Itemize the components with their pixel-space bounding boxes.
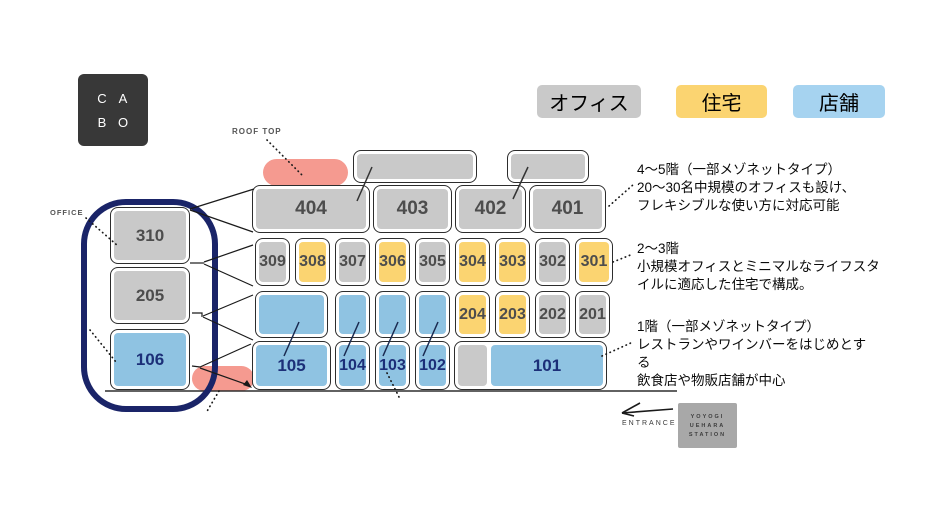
- cabo-logo: C A B O: [78, 74, 148, 146]
- unit-102: 102: [415, 341, 450, 390]
- text-line: 飲食店や物販店舗が中心: [637, 372, 937, 390]
- unit-fill: [511, 154, 585, 179]
- unit-309: 309: [255, 238, 290, 286]
- unit-fill: 401: [533, 189, 602, 229]
- legend-residence: 住宅: [676, 85, 767, 118]
- unit-201: 201: [575, 291, 610, 338]
- unit-205: 205: [110, 267, 190, 324]
- unit-204: 204: [455, 291, 490, 338]
- unit-2f-shop-3: [375, 291, 410, 338]
- logo-letter: A: [119, 91, 129, 106]
- unit-fill: 302: [539, 242, 566, 282]
- unit-fill: 305: [419, 242, 446, 282]
- unit-fill: [379, 295, 406, 334]
- unit-106: 106: [110, 329, 190, 390]
- legend-shop: 店舗: [793, 85, 885, 118]
- unit-fill: 104: [339, 345, 366, 386]
- unit-fill: 404: [256, 189, 366, 229]
- unit-5f-right: [507, 150, 589, 183]
- unit-fill: 105: [256, 345, 327, 386]
- text-line: レストランやワインバーをはじめとす: [637, 336, 937, 354]
- text-line: フレキシブルな使い方に対応可能: [637, 197, 937, 215]
- logo-letter: O: [118, 115, 129, 130]
- unit-fill: 403: [377, 189, 448, 229]
- unit-303: 303: [495, 238, 530, 286]
- unit-104: 104: [335, 341, 370, 390]
- unit-203: 203: [495, 291, 530, 338]
- unit-fill: 301: [579, 242, 609, 282]
- unit-307: 307: [335, 238, 370, 286]
- unit-fill: 402: [459, 189, 522, 229]
- pink-marker-entrance: [192, 366, 254, 391]
- unit-fill: 203: [499, 295, 526, 334]
- unit-306: 306: [375, 238, 410, 286]
- unit-fill: 202: [539, 295, 566, 334]
- entrance-label: ENTRANCE: [622, 420, 677, 427]
- text-line: る: [637, 354, 937, 372]
- unit-5f-left: [353, 150, 477, 183]
- text-line: 20〜30名中規模のオフィスも設け、: [637, 179, 937, 197]
- text-line: 2〜3階: [637, 240, 937, 258]
- text-line: 1階（一部メゾネットタイプ）: [637, 318, 937, 336]
- unit-402: 402: [455, 185, 526, 233]
- unit-fill: 205: [114, 271, 186, 320]
- unit-fill: 306: [379, 242, 406, 282]
- text-line: YOYOGI: [691, 414, 725, 420]
- unit-404: 404: [252, 185, 370, 233]
- station-box: YOYOGIUEHARASTATION: [678, 403, 737, 448]
- logo-letter: B: [98, 115, 108, 130]
- unit-fill: 103: [379, 345, 406, 386]
- note-floor-2-3: 2〜3階小規模オフィスとミニマルなライフスタイルに適応した住宅で構成。: [637, 240, 937, 294]
- entrance-arrow: [622, 403, 673, 416]
- unit-202: 202: [535, 291, 570, 338]
- leader-lines: [190, 189, 254, 385]
- unit-fill: 204: [459, 295, 486, 334]
- unit-fill: [419, 295, 446, 334]
- unit-2f-shop-2: [335, 291, 370, 338]
- unit-2f-shop-4: [415, 291, 450, 338]
- unit-fill: 303: [499, 242, 526, 282]
- unit-fill: 201: [579, 295, 606, 334]
- unit-403: 403: [373, 185, 452, 233]
- unit-fill: [259, 295, 324, 334]
- unit-101: 101: [491, 345, 603, 386]
- unit-fill: [357, 154, 473, 179]
- unit-fill: [339, 295, 366, 334]
- unit-fill: 304: [459, 242, 486, 282]
- text-line: イルに適応した住宅で構成。: [637, 276, 937, 294]
- unit-2f-shop-1: [255, 291, 328, 338]
- unit-305: 305: [415, 238, 450, 286]
- unit-308: 308: [295, 238, 330, 286]
- unit-fill: 307: [339, 242, 366, 282]
- unit-1f-gray: [458, 345, 487, 386]
- rooftop-label: ROOF TOP: [232, 127, 282, 136]
- unit-304: 304: [455, 238, 490, 286]
- logo-letter: C: [97, 91, 107, 106]
- text-line: STATION: [689, 432, 726, 438]
- unit-301: 301: [575, 238, 613, 286]
- unit-310: 310: [110, 207, 190, 264]
- note-floor-1: 1階（一部メゾネットタイプ）レストランやワインバーをはじめとする飲食店や物販店舗…: [637, 318, 937, 390]
- unit-302: 302: [535, 238, 570, 286]
- text-line: 4〜5階（一部メゾネットタイプ）: [637, 161, 937, 179]
- text-line: 小規模オフィスとミニマルなライフスタ: [637, 258, 937, 276]
- unit-fill: 310: [114, 211, 186, 260]
- unit-105: 105: [252, 341, 331, 390]
- unit-fill: 102: [419, 345, 446, 386]
- unit-fill: 106: [114, 333, 186, 386]
- slide-canvas: C A B O オフィス 住宅 店舗 ROOF TOP OFFICE 40440…: [0, 0, 940, 507]
- note-floor-4-5: 4〜5階（一部メゾネットタイプ）20〜30名中規模のオフィスも設け、フレキシブル…: [637, 161, 937, 215]
- office-label: OFFICE: [50, 208, 84, 217]
- unit-401: 401: [529, 185, 606, 233]
- text-line: UEHARA: [690, 423, 726, 429]
- unit-103: 103: [375, 341, 410, 390]
- legend-office: オフィス: [537, 85, 641, 118]
- pink-marker-rooftop: [263, 159, 348, 186]
- unit-fill: 309: [259, 242, 286, 282]
- unit-fill: 308: [299, 242, 326, 282]
